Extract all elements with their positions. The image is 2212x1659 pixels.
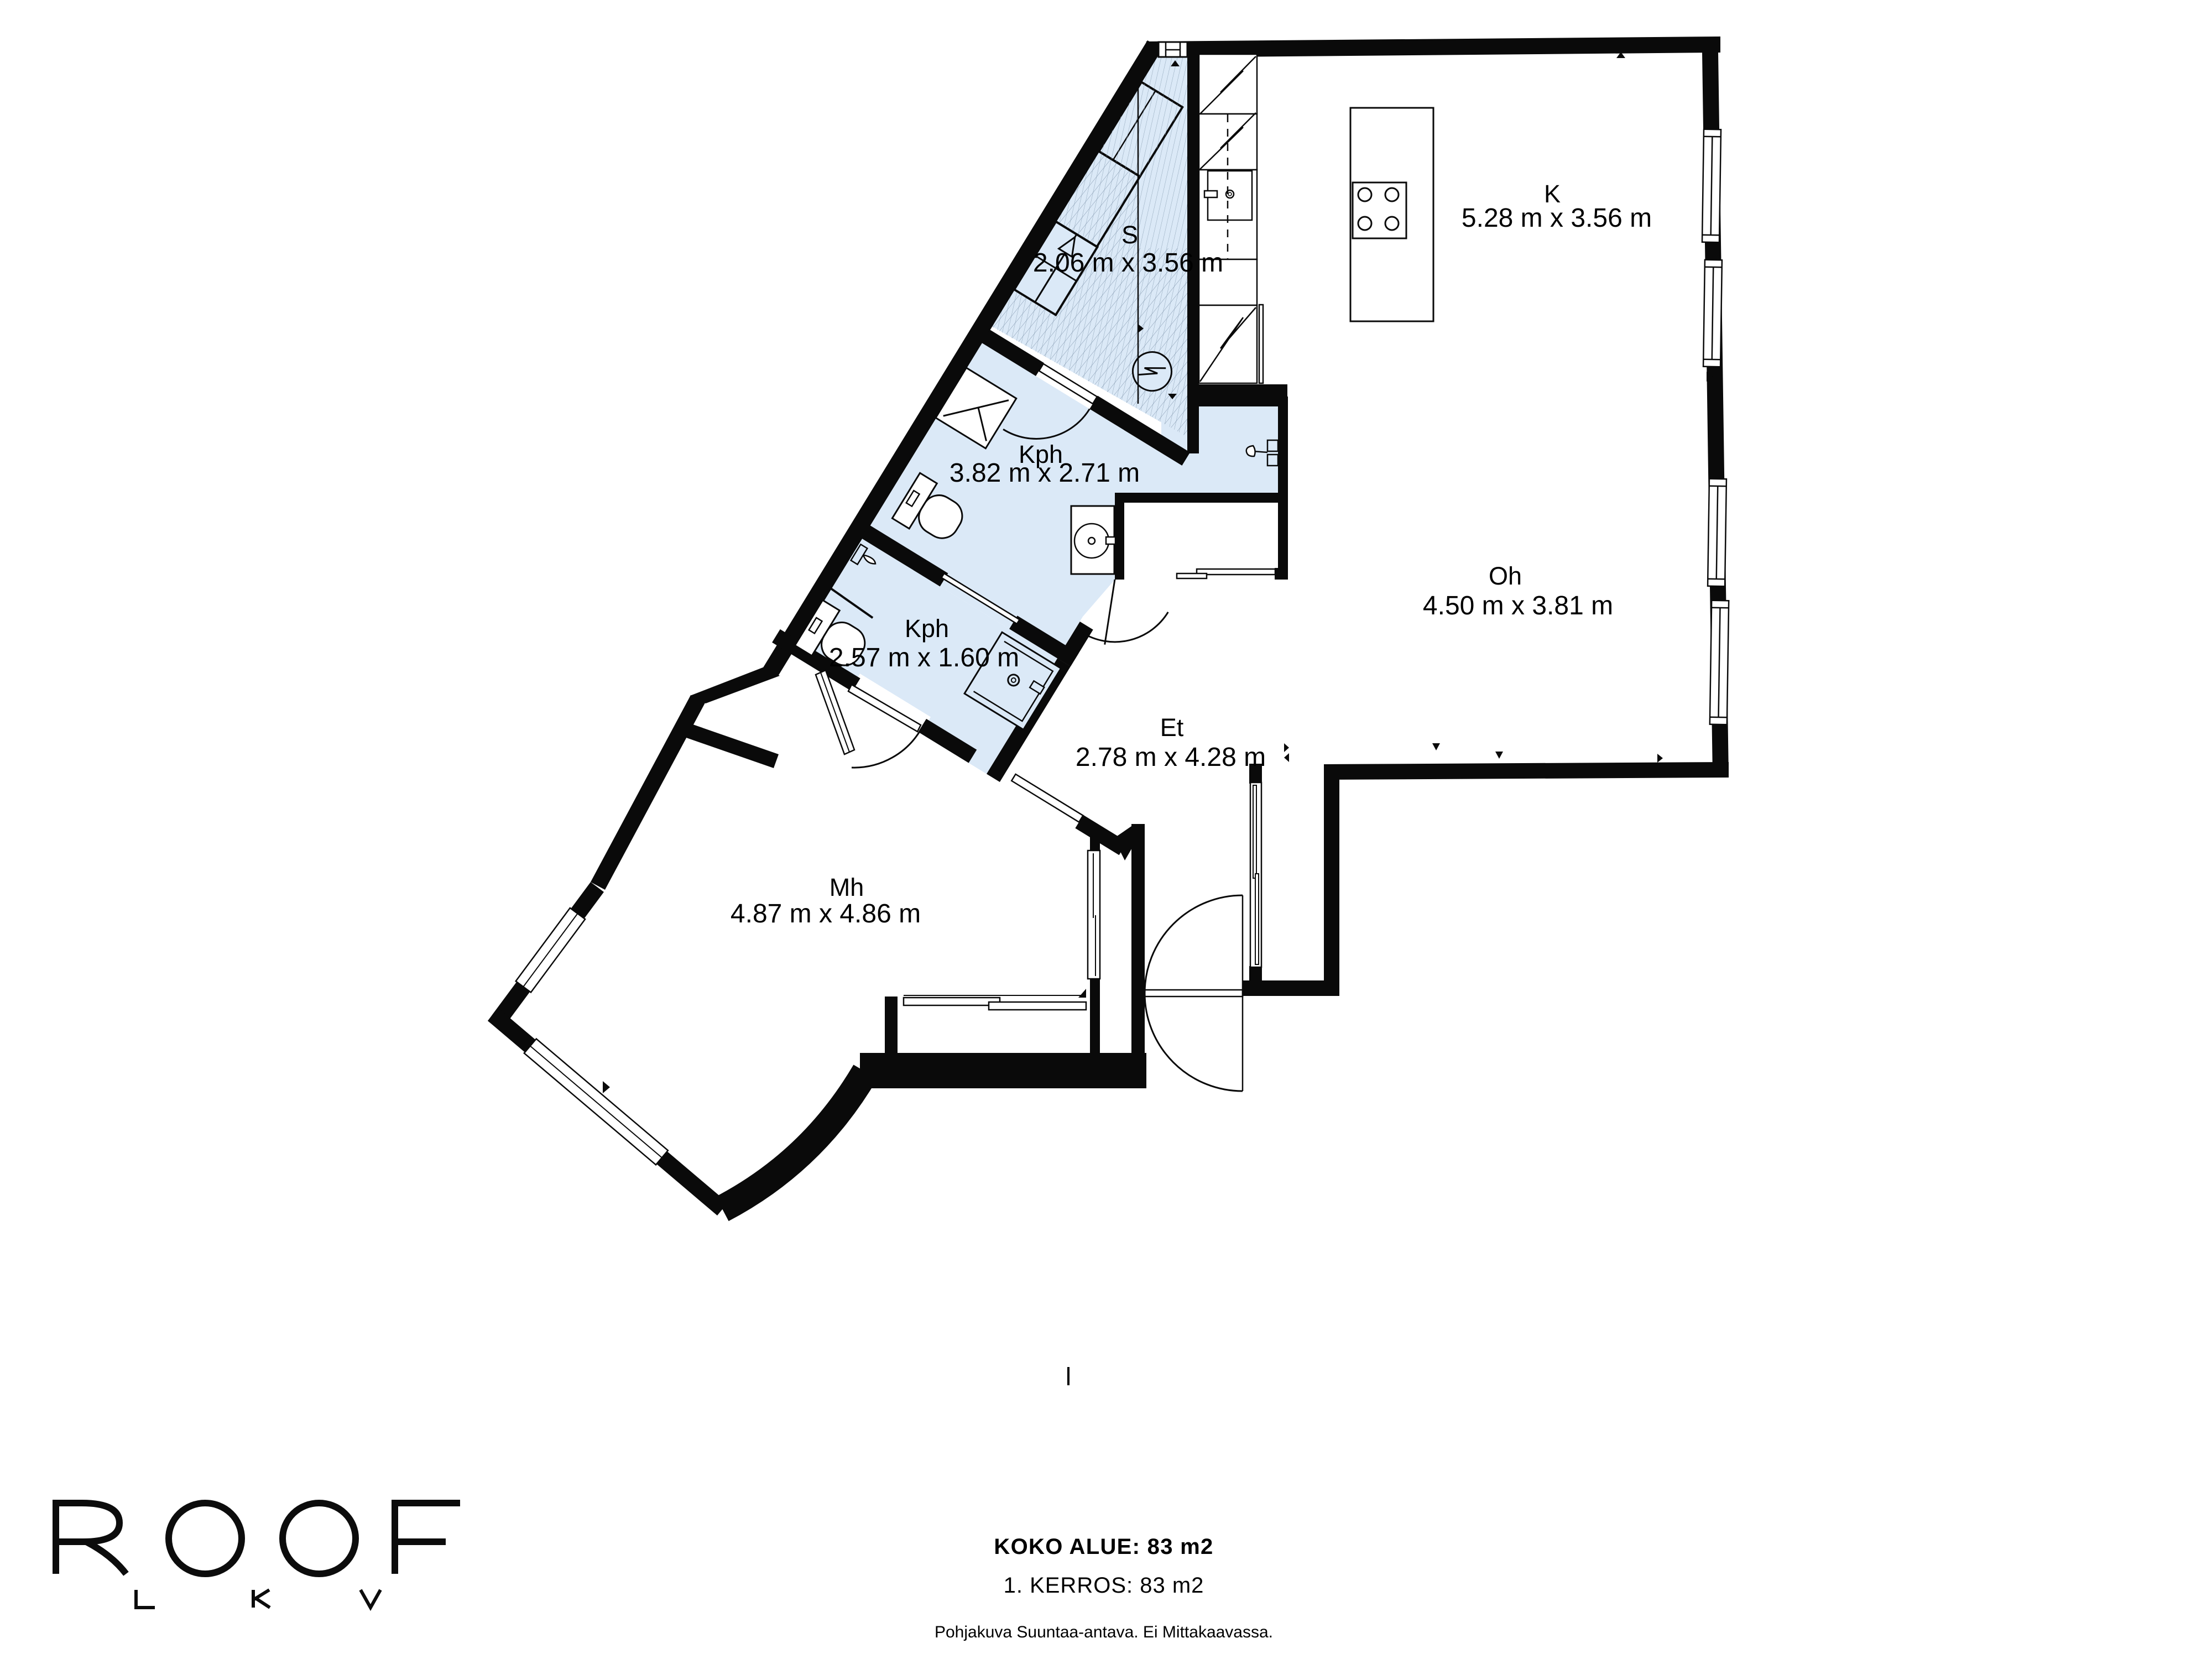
svg-text:2.57 m x 1.60 m: 2.57 m x 1.60 m — [829, 643, 1019, 672]
svg-text:Pohjakuva Suuntaa-antava. Ei M: Pohjakuva Suuntaa-antava. Ei Mittakaavas… — [935, 1623, 1273, 1641]
svg-text:S: S — [1121, 221, 1138, 249]
svg-text:Mh: Mh — [830, 873, 864, 901]
svg-text:2.06 m x 3.56 m: 2.06 m x 3.56 m — [1033, 248, 1223, 278]
svg-text:Kph: Kph — [905, 614, 949, 643]
svg-text:4.50 m x 3.81 m: 4.50 m x 3.81 m — [1423, 591, 1613, 620]
svg-text:1. KERROS: 83 m2: 1. KERROS: 83 m2 — [1004, 1573, 1204, 1598]
svg-text:5.28 m x 3.56 m: 5.28 m x 3.56 m — [1462, 204, 1652, 233]
svg-text:Et: Et — [1160, 713, 1184, 742]
svg-text:Oh: Oh — [1489, 562, 1522, 590]
svg-text:2.78 m x 4.28 m: 2.78 m x 4.28 m — [1076, 743, 1266, 772]
svg-text:KOKO ALUE: 83 m2: KOKO ALUE: 83 m2 — [994, 1535, 1213, 1559]
svg-text:3.82 m x 2.71 m: 3.82 m x 2.71 m — [950, 458, 1140, 488]
svg-text:4.87 m x 4.86 m: 4.87 m x 4.86 m — [731, 899, 921, 928]
